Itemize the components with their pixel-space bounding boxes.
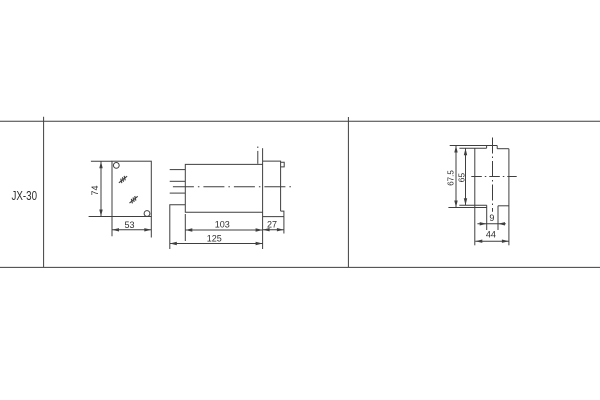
svg-text:65: 65	[456, 173, 466, 183]
svg-text:27: 27	[267, 219, 277, 229]
svg-text:125: 125	[207, 233, 222, 243]
svg-text:67.5: 67.5	[446, 170, 456, 186]
svg-text:9: 9	[489, 213, 494, 223]
svg-text:44: 44	[486, 229, 496, 239]
svg-text:74: 74	[90, 185, 100, 195]
svg-text:103: 103	[215, 220, 230, 230]
svg-text:JX-30: JX-30	[12, 189, 38, 203]
svg-text:53: 53	[124, 220, 134, 230]
